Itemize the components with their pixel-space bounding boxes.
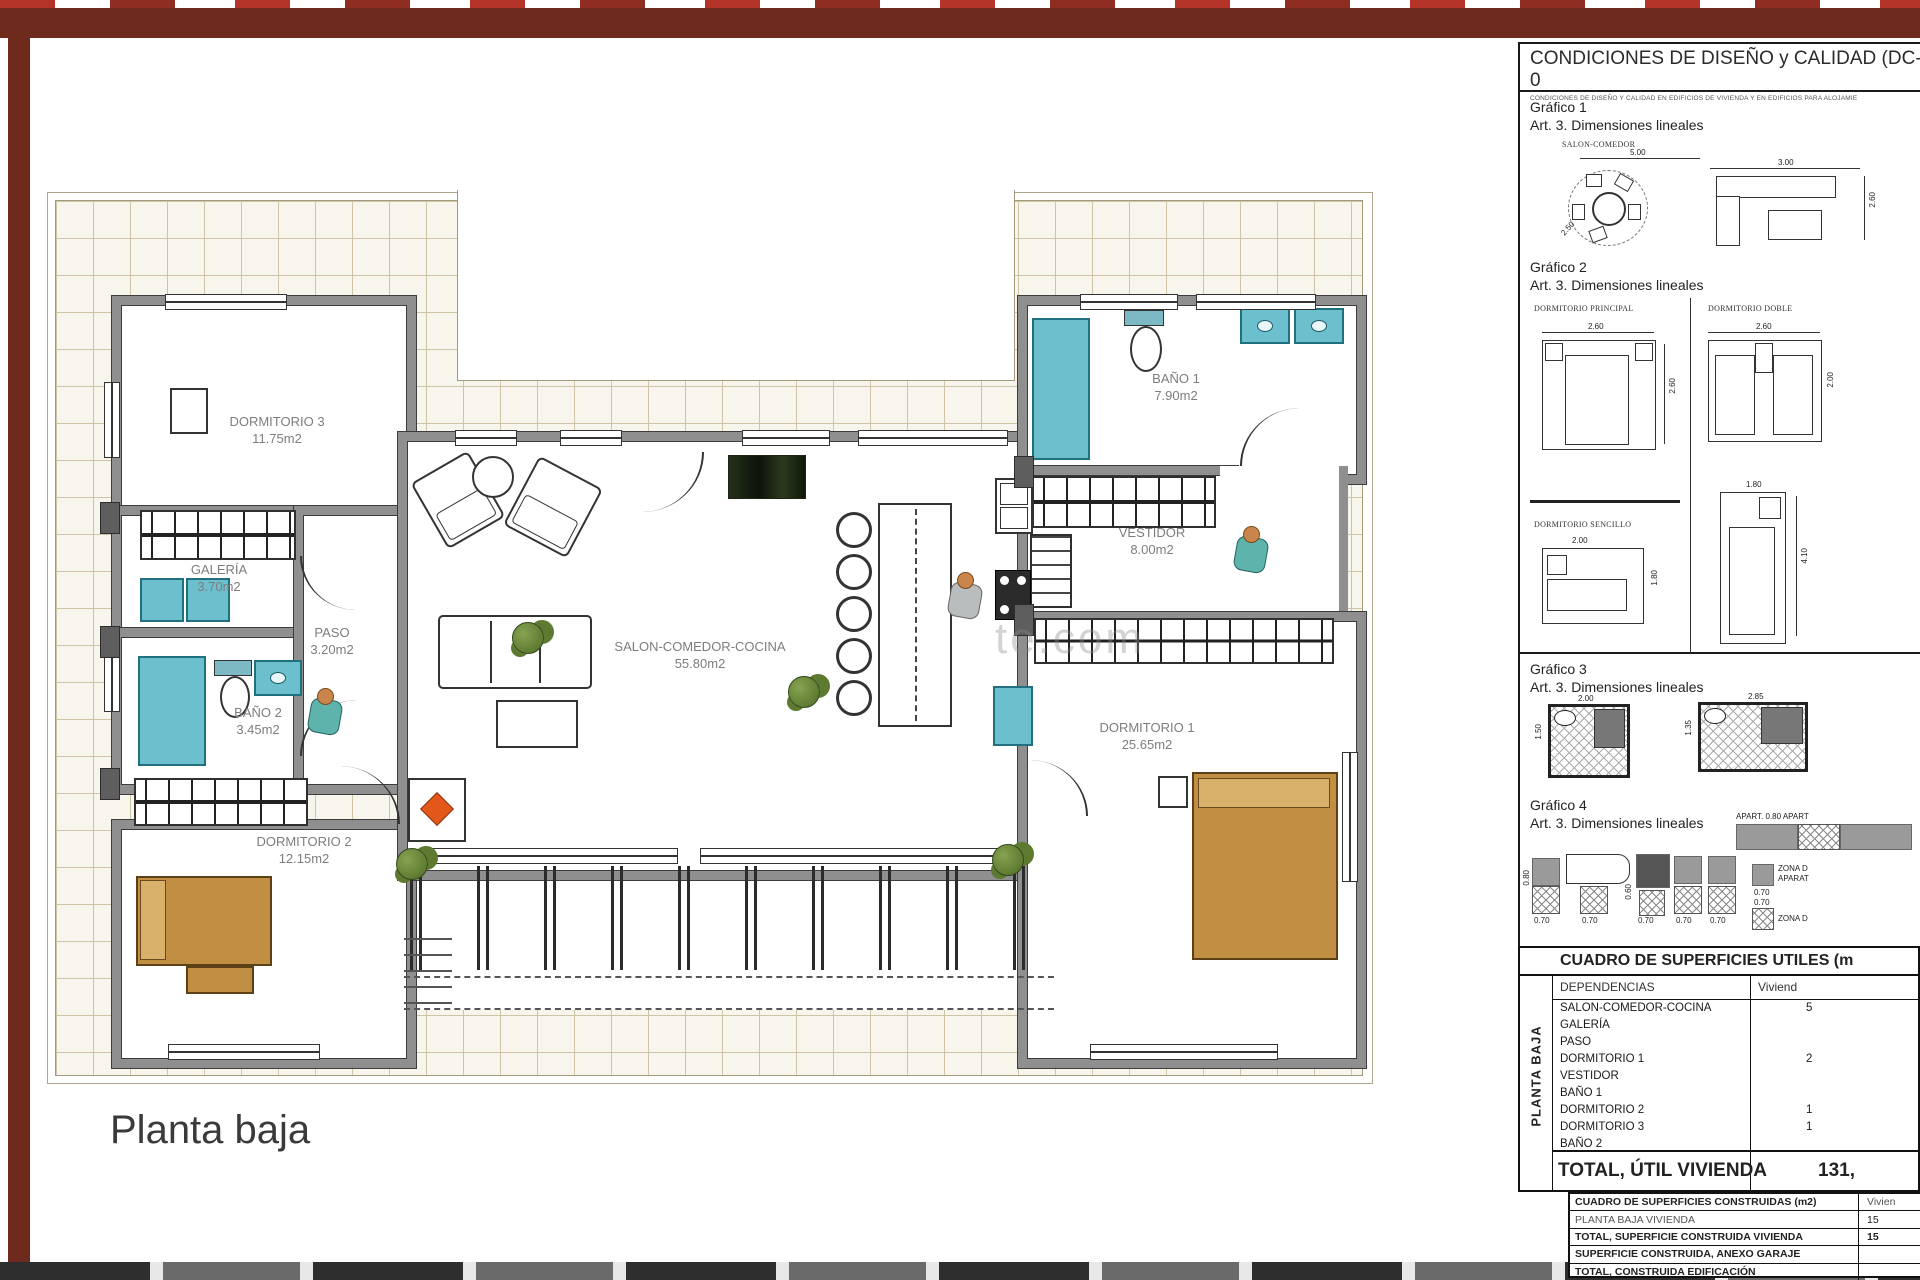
blueprint-sheet: DORMITORIO 311.75m2 GALERÍA3.70m2 PASO3.… (0, 0, 1920, 1280)
toilet-icon (1124, 310, 1164, 326)
room-label-bano-1: BAÑO 17.90m2 (1152, 371, 1200, 405)
clearance-hatch (1708, 886, 1736, 914)
table-icon (1592, 192, 1626, 226)
fixture-block (1532, 858, 1560, 886)
legend-block (1752, 864, 1774, 886)
toilet-icon (1130, 326, 1162, 372)
sofa-mini (1716, 176, 1836, 198)
divider (1530, 500, 1680, 503)
fixture-block (1674, 856, 1702, 884)
grafico-1: Gráfico 1 Art. 3. Dimensiones lineales S… (1520, 92, 1920, 252)
room-label-dormitorio-3: DORMITORIO 311.75m2 (229, 414, 324, 448)
surfaces-header: DEPENDENCIAS Viviend (1552, 976, 1918, 1000)
table-row: DORMITORIO 21 (1552, 1101, 1918, 1118)
wall-pillar (100, 626, 120, 658)
room-label-dormitorio-2: DORMITORIO 212.15m2 (256, 834, 351, 868)
bath-diagram (1698, 702, 1808, 772)
nightstand-icon (1158, 776, 1188, 808)
sofa-mini (1716, 196, 1740, 246)
dim-label: 0.70 (1638, 916, 1654, 925)
pillow-icon (1198, 778, 1330, 808)
apart-block (1840, 824, 1912, 850)
grafico-2: Gráfico 2 Art. 3. Dimensiones lineales D… (1520, 252, 1920, 654)
shower-icon (138, 656, 206, 766)
porch-columns (410, 866, 1050, 970)
left-frame-bar (8, 30, 30, 1280)
closet-hangers-icon (1032, 476, 1216, 528)
dim-label: 0.70 (1754, 888, 1770, 897)
table-row: PASO (1552, 1033, 1918, 1050)
dim-line (1864, 176, 1865, 240)
dim-label: 2.60 (1756, 322, 1772, 331)
table-row: TOTAL, SUPERFICIE CONSTRUIDA VIVIENDA15 (1570, 1229, 1920, 1246)
grafico-1-caption: SALON-COMEDOR (1562, 140, 1635, 149)
apart-block (1736, 824, 1798, 850)
table-row: VESTIDOR (1552, 1067, 1918, 1084)
grafico-4-name: Gráfico 4 (1530, 796, 1920, 814)
room-label-paso: PASO3.20m2 (310, 625, 353, 659)
dim-label: 2.85 (1748, 692, 1764, 701)
dim-label: 2.60 (1588, 322, 1604, 331)
stool-icon (836, 596, 872, 632)
fixture-block (1708, 856, 1736, 884)
sink-icon (1294, 308, 1344, 344)
table-row: PLANTA BAJA VIVIENDA15 (1570, 1211, 1920, 1228)
dim-label: 0.70 (1710, 916, 1726, 925)
grafico-2-sencillo: DORMITORIO SENCILLO (1534, 520, 1631, 529)
window-icon (104, 382, 120, 458)
dim-line (1796, 496, 1797, 636)
sofa-icon (438, 615, 592, 689)
grafico-2-law: Art. 3. Dimensiones lineales (1530, 276, 1920, 294)
col-dependencias: DEPENDENCIAS (1560, 980, 1655, 994)
chair-mini (1572, 204, 1585, 220)
stool-icon (836, 512, 872, 548)
dim-label: 2.60 (1868, 192, 1877, 208)
dim-label: 0.70 (1582, 916, 1598, 925)
plant-icon (396, 848, 428, 880)
coffee-table-mini (1768, 210, 1822, 240)
dim-line (1580, 158, 1700, 159)
pillow-icon (140, 880, 166, 960)
dim-label: 0.70 (1534, 916, 1550, 925)
apart-hatch (1798, 824, 1840, 850)
wall-pillar (100, 502, 120, 534)
grafico-3: Gráfico 3 Art. 3. Dimensiones lineales 2… (1520, 654, 1920, 790)
planter-icon (728, 455, 806, 499)
window-icon (858, 430, 1008, 446)
surfaces-table-title: CUADRO DE SUPERFICIES UTILES (m (1520, 948, 1918, 976)
window-icon (700, 848, 1008, 864)
col-vivienda: Viviend (1758, 980, 1797, 994)
room-label-bano-2: BAÑO 23.45m2 (234, 705, 282, 739)
window-icon (742, 430, 830, 446)
top-red-ticks (0, 0, 1920, 8)
divider (1690, 298, 1691, 654)
shower-block (1636, 854, 1670, 888)
dim-line (1708, 332, 1820, 333)
legend-label: ZONA D (1778, 864, 1808, 873)
dim-label: 1.50 (1534, 724, 1543, 740)
window-icon (1080, 294, 1178, 310)
window-icon (1090, 1044, 1278, 1060)
person-icon (946, 572, 984, 620)
room-label-dormitorio-1: DORMITORIO 125.65m2 (1099, 720, 1194, 754)
table-row: DORMITORIO 31 (1552, 1118, 1918, 1135)
stool-icon (836, 680, 872, 716)
dim-label: 2.60 (1668, 378, 1677, 394)
window-icon (168, 1044, 320, 1060)
sink-icon (1240, 308, 1290, 344)
grafico-1-law: Art. 3. Dimensiones lineales (1530, 116, 1920, 134)
closet-hangers-icon (134, 778, 308, 826)
table-row: CUADRO DE SUPERFICIES CONSTRUIDAS (m2)Vi… (1570, 1194, 1920, 1211)
washer-icon (140, 578, 184, 622)
surfaces-table: CUADRO DE SUPERFICIES UTILES (m PLANTA B… (1518, 946, 1920, 1192)
bed-principal-mini (1542, 340, 1656, 450)
porch-dashed-edge (404, 976, 1054, 1010)
window-icon (165, 294, 287, 310)
grafico-2-doble: DORMITORIO DOBLE (1708, 304, 1792, 313)
total-value: 131, (1782, 1160, 1855, 1182)
watermark: te.com (995, 614, 1145, 664)
clearance-hatch (1639, 890, 1665, 916)
fireplace-icon (408, 778, 466, 842)
bath-diagram (1548, 704, 1630, 778)
top-frame-bar (0, 8, 1920, 38)
bed-bench-icon (186, 966, 254, 994)
bed-single-mini (1720, 492, 1786, 644)
tv-table-icon (496, 700, 578, 748)
desk-icon (170, 388, 208, 434)
table-row: SALON-COMEDOR-COCINA5 (1552, 999, 1918, 1016)
sink-icon (254, 660, 302, 696)
legend-label: ZONA D (1778, 914, 1808, 923)
conditions-panel: CONDICIONES DE DISEÑO y CALIDAD (DC-0 CO… (1518, 42, 1920, 948)
dim-label: 0.60 (1624, 884, 1633, 900)
dim-line (1710, 168, 1860, 169)
stool-icon (836, 554, 872, 590)
dim-label: 4.10 (1800, 548, 1809, 564)
grafico-4: Gráfico 4 Art. 3. Dimensiones lineales A… (1520, 790, 1920, 948)
dim-label: 3.00 (1778, 158, 1794, 167)
grafico-2-principal: DORMITORIO PRINCIPAL (1534, 304, 1634, 313)
dim-label: 2.00 (1572, 536, 1588, 545)
group-label: PLANTA BAJA (1520, 999, 1552, 1152)
built-table: CUADRO DE SUPERFICIES CONSTRUIDAS (m2)Vi… (1568, 1192, 1920, 1278)
surfaces-total-row: TOTAL, ÚTIL VIVIENDA 131, (1552, 1150, 1918, 1190)
clearance-hatch (1532, 886, 1560, 914)
shower-icon (1032, 318, 1090, 460)
panel-title: CONDICIONES DE DISEÑO y CALIDAD (DC-0 (1530, 48, 1920, 92)
porch-steps (404, 938, 452, 1004)
dim-label: 1.80 (1746, 480, 1762, 489)
room-label-vestidor: VESTIDOR8.00m2 (1119, 525, 1185, 559)
surfaces-rows: SALON-COMEDOR-COCINA5 GALERÍA PASO DORMI… (1552, 999, 1918, 1152)
dim-label: 2.00 (1826, 372, 1835, 388)
table-row: TOTAL, CONSTRUIDA EDIFICACIÓN (1570, 1264, 1920, 1280)
grafico-2-name: Gráfico 2 (1530, 258, 1920, 276)
terrace-notch (457, 190, 1015, 381)
room-dormitorio-3 (112, 296, 416, 524)
dim-label: 2.00 (1578, 694, 1594, 703)
side-table-icon (472, 456, 514, 498)
wall-pillar (100, 768, 120, 800)
window-icon (1196, 294, 1316, 310)
dim-label: 2.50 (1559, 220, 1576, 238)
dim-line (1542, 332, 1654, 333)
table-row: GALERÍA (1552, 1016, 1918, 1033)
room-label-galeria: GALERÍA3.70m2 (191, 562, 247, 596)
clearance-hatch (1674, 886, 1702, 914)
apart-label: APART. 0.80 APART (1736, 812, 1809, 821)
room-label-salon: SALON-COMEDOR-COCINA55.80m2 (614, 639, 785, 673)
plant-icon (992, 844, 1024, 876)
person-icon (306, 688, 344, 736)
plant-icon (512, 622, 544, 654)
dim-label: 0.80 (1522, 870, 1531, 886)
dim-label: 0.70 (1754, 898, 1770, 907)
dim-label: 5.00 (1630, 148, 1646, 157)
dim-label: 1.80 (1650, 570, 1659, 586)
sink-basin (1000, 507, 1028, 529)
legend-hatch (1752, 908, 1774, 930)
legend-label: APARAT (1778, 874, 1809, 883)
dim-label: 1.35 (1684, 720, 1693, 736)
closet-hangers-icon (140, 510, 296, 560)
panel-header: CONDICIONES DE DISEÑO y CALIDAD (DC-0 CO… (1520, 44, 1920, 92)
dim-line (1664, 344, 1665, 444)
fridge-icon (993, 686, 1033, 746)
bathtub-icon (1566, 854, 1630, 884)
chair-mini (1628, 204, 1641, 220)
clearance-hatch (1580, 886, 1608, 914)
floor-title: Planta baja (110, 1108, 310, 1153)
dim-label: 0.70 (1676, 916, 1692, 925)
window-icon (560, 430, 622, 446)
plant-icon (788, 676, 820, 708)
total-label: TOTAL, ÚTIL VIVIENDA (1552, 1160, 1782, 1182)
wall-pillar (1014, 456, 1034, 488)
grafico-1-name: Gráfico 1 (1530, 98, 1920, 116)
stool-icon (836, 638, 872, 674)
table-row: DORMITORIO 12 (1552, 1050, 1918, 1067)
closet-shelves-icon (1030, 534, 1072, 608)
bed-sencillo-mini (1542, 548, 1644, 624)
bed-doble-mini (1708, 340, 1822, 442)
window-icon (455, 430, 517, 446)
toilet-icon (214, 660, 252, 676)
window-icon (1342, 752, 1358, 882)
grafico-3-name: Gráfico 3 (1530, 660, 1920, 678)
person-icon (1232, 526, 1270, 574)
table-row: BAÑO 1 (1552, 1084, 1918, 1101)
window-icon (430, 848, 678, 864)
table-row: SUPERFICIE CONSTRUIDA, ANEXO GARAJE (1570, 1246, 1920, 1263)
chair-mini (1586, 174, 1602, 187)
kitchen-island (878, 503, 952, 727)
